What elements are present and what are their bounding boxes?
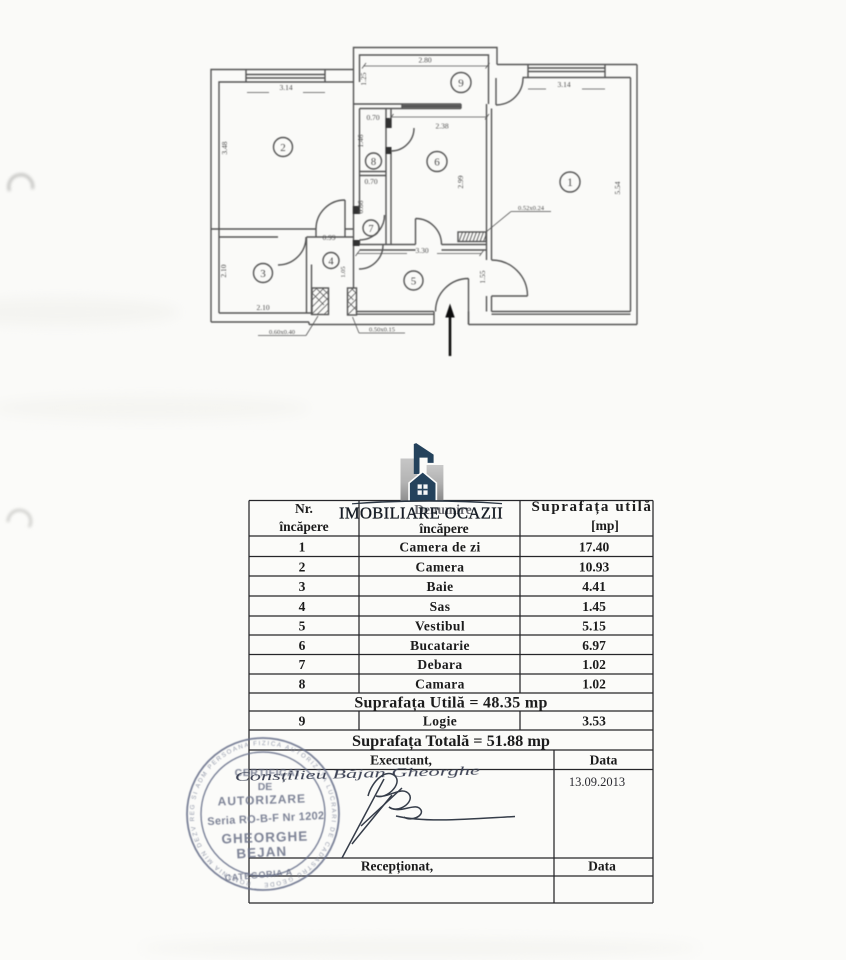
svg-text:Data: Data — [588, 859, 616, 874]
svg-text:0.52x0.24: 0.52x0.24 — [518, 205, 545, 212]
svg-text:3.53: 3.53 — [582, 714, 606, 729]
svg-text:7: 7 — [368, 224, 373, 235]
svg-text:încăpere: încăpere — [278, 519, 328, 534]
svg-text:8: 8 — [371, 157, 376, 168]
svg-text:0.86: 0.86 — [356, 200, 365, 213]
svg-text:0.70: 0.70 — [364, 177, 377, 186]
svg-text:IMOBILIARE OCAZII: IMOBILIARE OCAZII — [339, 504, 503, 523]
svg-text:0.60x0.40: 0.60x0.40 — [269, 329, 295, 336]
svg-text:2: 2 — [280, 142, 286, 154]
svg-text:Sas: Sas — [430, 599, 451, 614]
svg-text:Baie: Baie — [426, 579, 453, 594]
svg-text:1: 1 — [567, 177, 573, 189]
svg-text:2.99: 2.99 — [456, 175, 465, 188]
svg-text:0.70: 0.70 — [366, 113, 379, 122]
svg-text:5: 5 — [299, 619, 306, 634]
svg-text:1: 1 — [299, 540, 306, 555]
svg-text:0.99: 0.99 — [322, 233, 335, 242]
svg-text:2.38: 2.38 — [435, 122, 448, 131]
svg-text:9: 9 — [458, 78, 464, 90]
svg-text:6: 6 — [299, 638, 306, 653]
svg-text:17.40: 17.40 — [579, 540, 610, 555]
svg-text:5.15: 5.15 — [582, 619, 606, 634]
svg-text:1.55: 1.55 — [478, 270, 487, 283]
svg-text:3.48: 3.48 — [220, 141, 229, 154]
svg-text:Data: Data — [590, 753, 618, 768]
svg-text:Suprafața utilă: Suprafața utilă — [531, 499, 652, 515]
svg-text:Vestibul: Vestibul — [415, 619, 465, 634]
svg-text:1.25: 1.25 — [359, 72, 368, 85]
svg-text:[mp]: [mp] — [591, 518, 619, 533]
svg-text:7: 7 — [299, 657, 306, 672]
svg-text:2.80: 2.80 — [418, 56, 431, 65]
svg-text:4: 4 — [328, 257, 334, 268]
svg-text:Debara: Debara — [417, 657, 462, 672]
svg-text:GHEORGHE: GHEORGHE — [221, 828, 308, 846]
svg-text:Bucatarie: Bucatarie — [410, 638, 470, 653]
svg-text:Camera: Camera — [416, 560, 465, 575]
svg-text:Suprafața Utilă = 48.35 mp: Suprafața Utilă = 48.35 mp — [354, 695, 547, 713]
svg-text:6.97: 6.97 — [582, 638, 606, 653]
svg-text:1.46: 1.46 — [356, 134, 365, 147]
svg-text:4.41: 4.41 — [582, 579, 606, 594]
svg-text:9: 9 — [299, 714, 306, 729]
svg-text:3: 3 — [299, 579, 306, 594]
svg-text:Nr.: Nr. — [295, 501, 313, 516]
svg-text:5.54: 5.54 — [613, 181, 622, 194]
svg-text:3.30: 3.30 — [415, 246, 428, 255]
svg-text:Suprafața Totală = 51.88 mp: Suprafața Totală = 51.88 mp — [352, 731, 550, 751]
svg-text:3: 3 — [260, 268, 266, 280]
svg-text:0.50x0.15: 0.50x0.15 — [369, 327, 395, 334]
svg-text:Logie: Logie — [423, 714, 457, 729]
svg-text:1.02: 1.02 — [582, 657, 606, 672]
svg-text:1.02: 1.02 — [582, 677, 606, 692]
svg-text:13.09.2013: 13.09.2013 — [569, 775, 625, 789]
svg-text:2.10: 2.10 — [219, 264, 228, 277]
svg-text:10.93: 10.93 — [579, 560, 610, 575]
svg-text:3.14: 3.14 — [557, 80, 570, 89]
svg-text:2.10: 2.10 — [256, 303, 269, 312]
svg-text:3.14: 3.14 — [279, 83, 292, 92]
svg-text:BEJAN: BEJAN — [236, 844, 287, 862]
svg-text:6: 6 — [434, 157, 440, 169]
svg-text:1.05: 1.05 — [340, 266, 347, 277]
svg-text:încăpere: încăpere — [418, 521, 468, 536]
svg-text:Camera de zi: Camera de zi — [399, 540, 480, 555]
svg-text:4: 4 — [299, 599, 306, 614]
svg-text:5: 5 — [411, 276, 417, 288]
svg-text:Camara: Camara — [415, 677, 465, 692]
svg-text:Recepționat,: Recepționat, — [361, 859, 433, 875]
svg-text:2: 2 — [299, 560, 306, 575]
svg-text:8: 8 — [299, 677, 306, 692]
svg-text:1.45: 1.45 — [582, 599, 606, 614]
